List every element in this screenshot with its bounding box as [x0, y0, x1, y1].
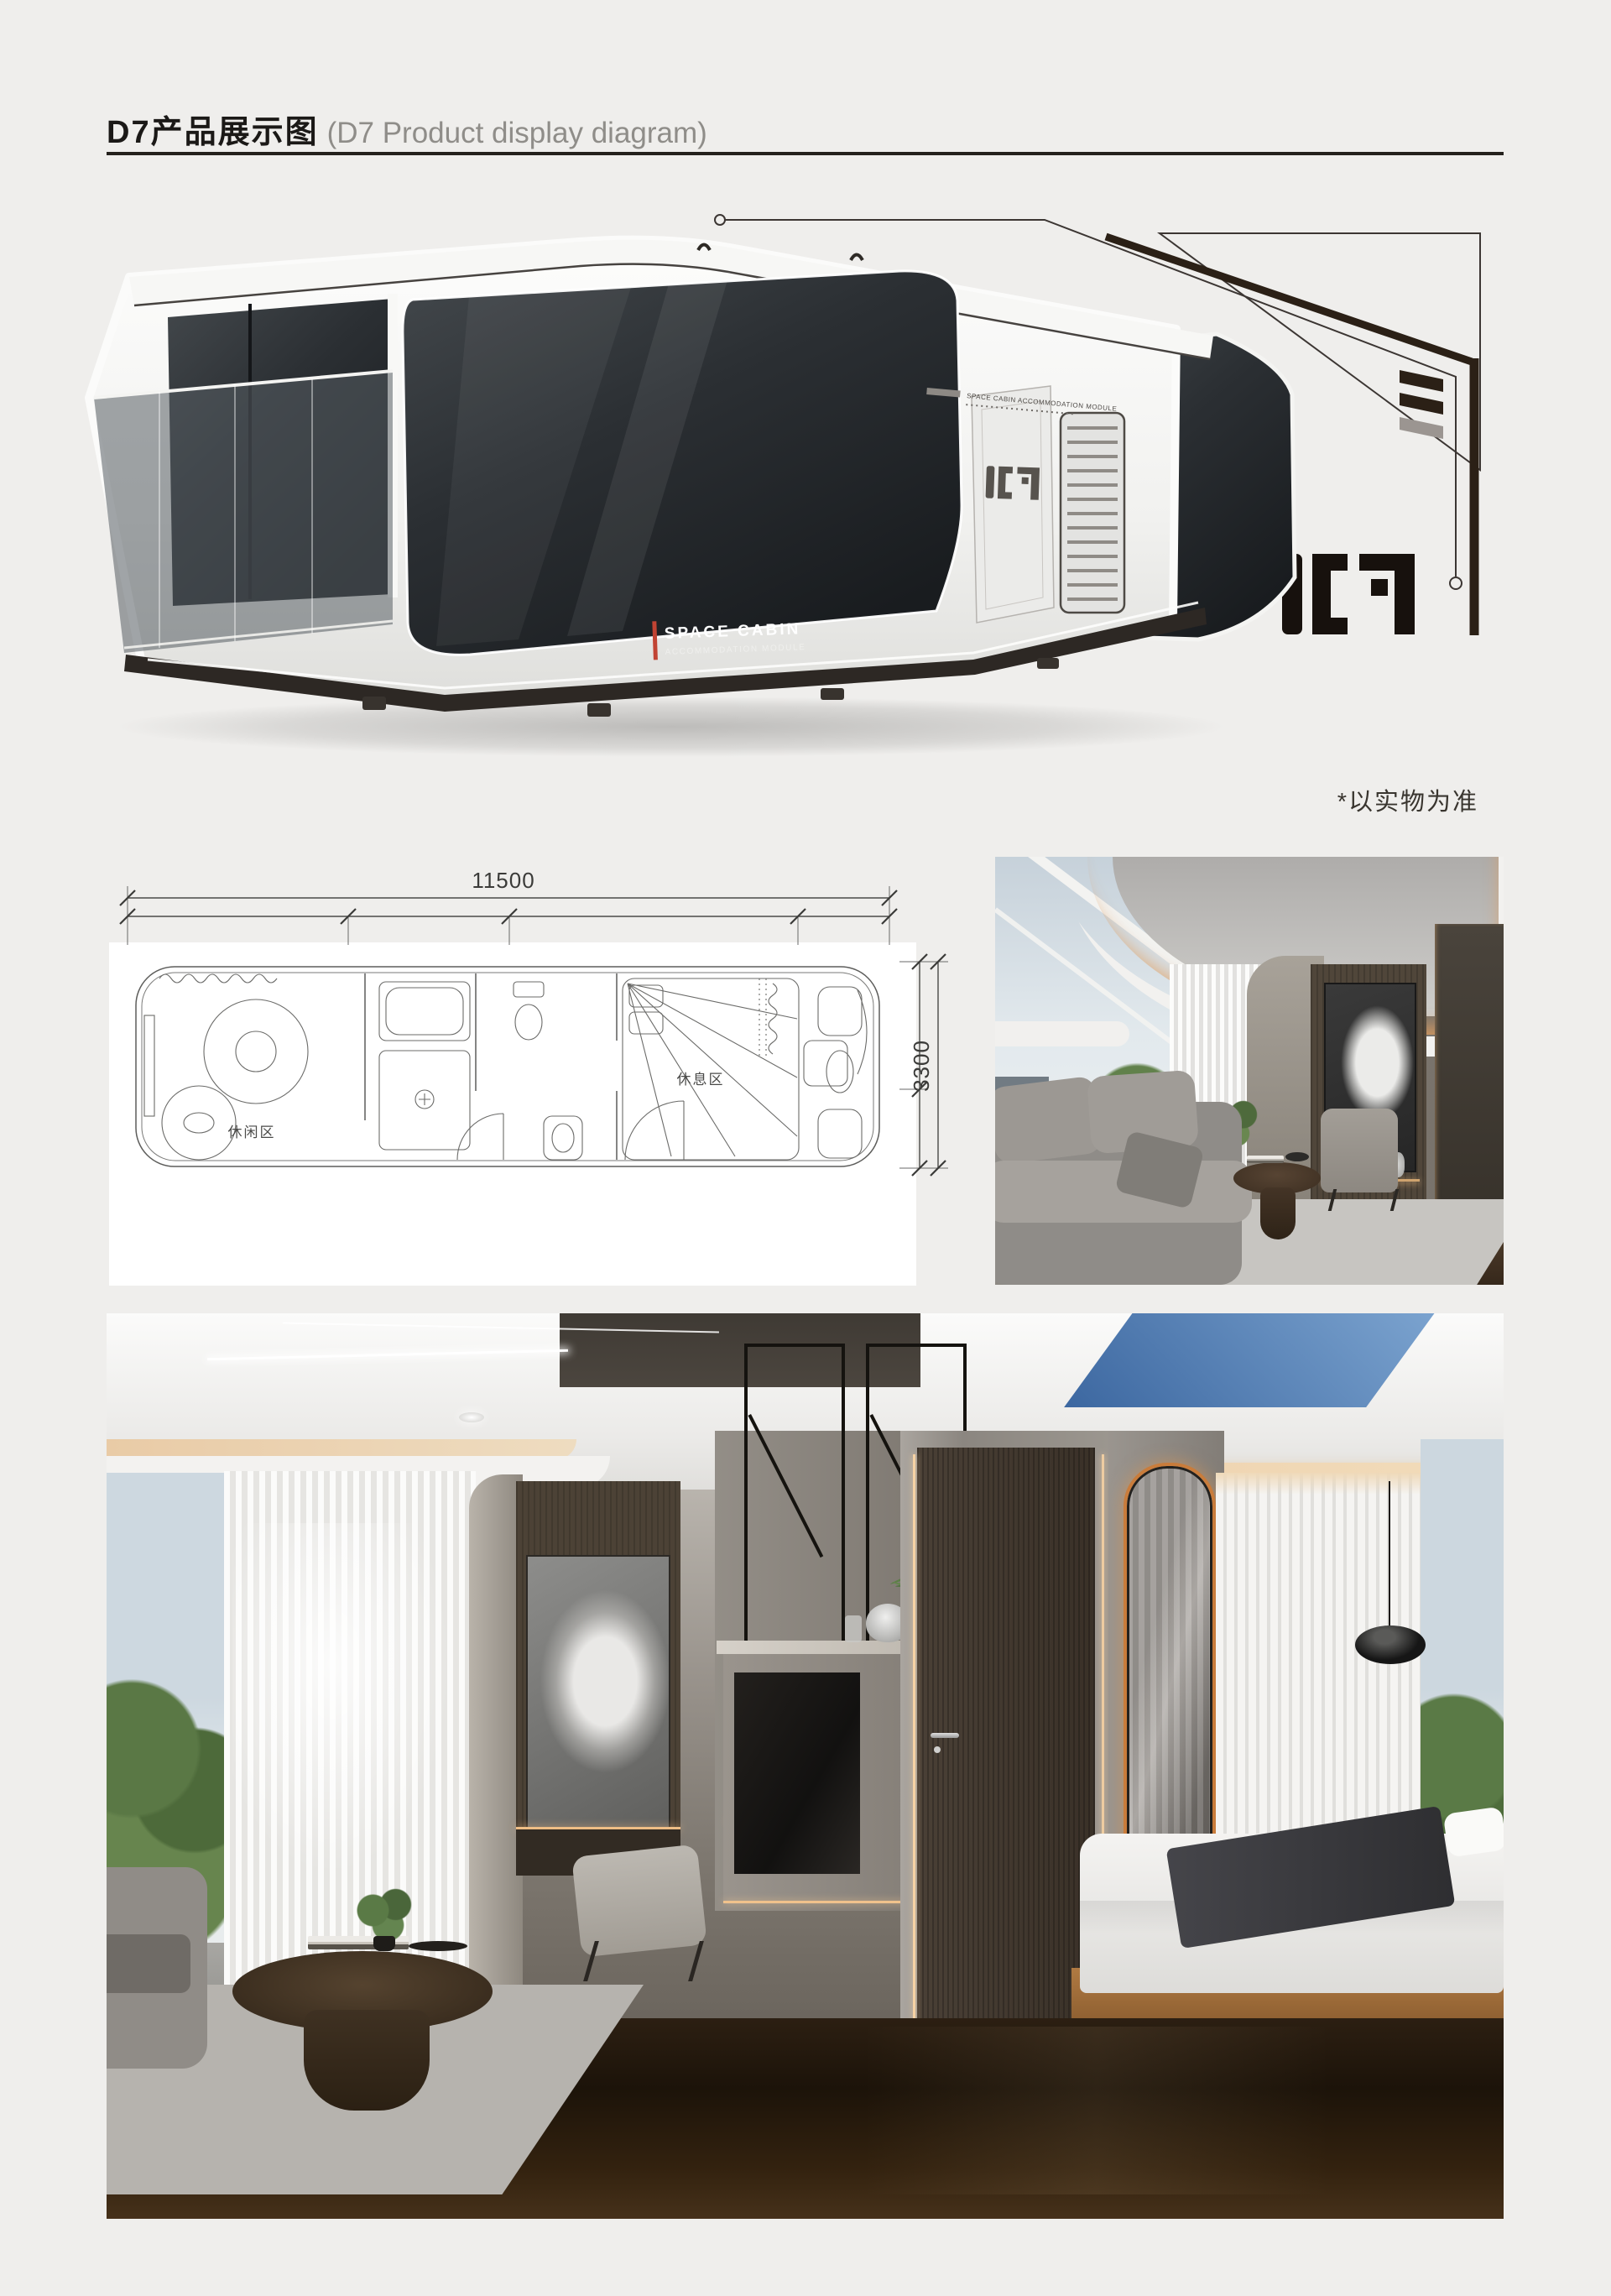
door-handle — [931, 1733, 959, 1738]
armchair-legs — [1328, 1189, 1399, 1211]
floorplan: 11500 3300 — [92, 864, 965, 1297]
island-glass-front — [734, 1672, 860, 1874]
plant-vase — [373, 1936, 395, 1951]
glass-cup — [845, 1615, 862, 1642]
books — [1247, 1156, 1284, 1163]
width-dim-text: 11500 — [472, 868, 534, 893]
pillow — [1443, 1806, 1504, 1857]
table-plant — [347, 1884, 422, 1943]
label-rest: 休息区 — [677, 1072, 725, 1088]
armchair — [1321, 1109, 1398, 1192]
hazard-bars — [1400, 370, 1443, 439]
interior-photo-living — [995, 857, 1504, 1285]
bowl — [1285, 1152, 1309, 1161]
coffee-table-base — [1260, 1187, 1296, 1239]
cabin-window: SPACE CABIN ACCOMMODATION MODULE — [403, 271, 962, 660]
lounge-chair-frame — [583, 1941, 704, 1981]
door-edge-led — [913, 1454, 915, 2022]
floorplan-panel — [109, 942, 916, 1286]
curved-column — [469, 1474, 523, 2038]
artwork — [526, 1555, 670, 1835]
product-sheet-page: D7产品展示图(D7 Product display diagram) — [0, 0, 1611, 2296]
disclaimer-note: *以实物为准 — [1337, 782, 1478, 817]
label-lounge: 休闲区 — [228, 1125, 276, 1140]
bed-throw-left — [107, 1934, 190, 1993]
interior-photo-bedroom — [107, 1313, 1504, 2219]
depth-dim-text: 3300 — [909, 1040, 934, 1092]
ticks — [120, 890, 897, 924]
pendant-lamp — [1355, 1625, 1426, 1664]
curtain-light-wash — [232, 1523, 451, 1876]
glass-railing — [94, 371, 393, 653]
door-lock — [934, 1746, 941, 1753]
ceiling-fascia-left — [995, 1021, 1129, 1046]
floor-sheen — [862, 2027, 1449, 2194]
dimension-width: 11500 — [120, 868, 897, 945]
downlight — [459, 1412, 484, 1422]
cabin-render: SPACE CABIN ACCOMMODATION MODULE SPACE C — [76, 210, 1317, 764]
cabin-shadow — [117, 697, 1225, 757]
table-base — [304, 2010, 430, 2111]
pendant-wire — [1389, 1481, 1390, 1632]
